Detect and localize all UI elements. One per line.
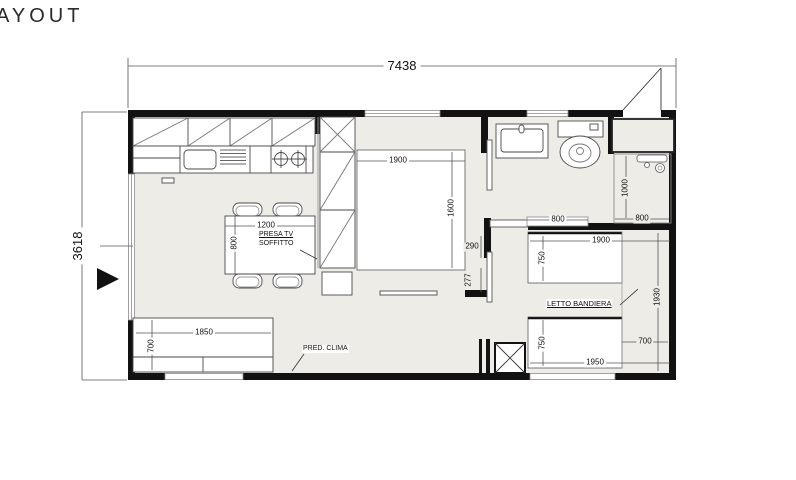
bedside-table <box>322 272 352 295</box>
dim-overall-width: 7438 <box>384 59 421 73</box>
window-bottom-right <box>530 374 615 380</box>
label-presa-tv-soffitto: PRESA TV SOFFITTO <box>259 231 293 249</box>
partition-l-piece <box>465 290 489 297</box>
shower-knob <box>656 164 665 173</box>
wall-top-1 <box>128 110 365 117</box>
label-pred-clima: PRED. CLIMA <box>302 345 349 353</box>
dim-table-width: 1200 <box>255 222 277 231</box>
wall-bottom-2 <box>243 373 530 380</box>
wall-bottom-1 <box>128 373 165 380</box>
dim-bed-depth: 1600 <box>448 197 457 219</box>
dim-bed2bot-depth: 750 <box>539 334 548 351</box>
dim-sofa-depth: 700 <box>148 337 157 354</box>
entrance-door-swing <box>623 68 661 110</box>
column-x <box>495 343 525 373</box>
wall-top-2 <box>440 110 527 117</box>
dim-shower-width: 800 <box>633 215 650 224</box>
dim-shower-depth: 1000 <box>622 177 631 199</box>
partition-bottom-stub-2 <box>486 339 490 373</box>
dim-shelf-width: 800 <box>549 216 566 225</box>
bed-bench <box>380 291 437 295</box>
door-swing-line <box>623 68 661 110</box>
kitchen-sink-basin <box>184 150 216 169</box>
dim-room2-depth: 1930 <box>654 286 663 308</box>
page-title: AYOUT <box>0 5 83 28</box>
dim-wall-277: 277 <box>465 271 474 288</box>
toilet-bowl <box>560 136 600 168</box>
sliding-door-leaf-3 <box>490 220 528 227</box>
kitchen-handle <box>162 178 174 183</box>
shower-head <box>645 163 650 168</box>
dim-side-space: 700 <box>636 338 653 347</box>
view-arrow-icon <box>97 268 119 290</box>
label-letto-bandiera: LETTO BANDIERA <box>546 299 612 308</box>
wardrobe-body <box>320 117 355 268</box>
bath-sink-faucet <box>519 125 524 133</box>
shower-mixer-bar <box>637 155 667 162</box>
window-bottom-left <box>165 374 243 380</box>
entry-cabinet <box>612 119 674 152</box>
partition-bottom-stub-1 <box>479 339 482 373</box>
wall-top-3 <box>568 110 623 117</box>
dim-table-depth: 800 <box>231 234 240 251</box>
dim-bed2top-width: 1900 <box>590 237 612 246</box>
floor-plan: AYOUT 7438 3618 1900 1600 1200 800 1850 … <box>0 0 796 480</box>
dim-bed2top-depth: 750 <box>539 249 548 266</box>
wardrobe <box>318 117 355 268</box>
dim-bed2bot-width: 1950 <box>584 359 606 368</box>
sliding-door-leaf-1 <box>487 140 492 190</box>
toilet-flush-button <box>590 124 598 130</box>
dim-bed-width: 1900 <box>387 157 409 166</box>
dim-wall-290: 290 <box>463 243 480 252</box>
dim-overall-height: 3618 <box>71 228 85 265</box>
kitchen <box>133 118 315 183</box>
sliding-door-leaf-2 <box>487 252 492 302</box>
wall-bottom-3 <box>615 373 676 380</box>
label-soffitto: SOFFITTO <box>259 240 293 249</box>
label-presa-tv: PRESA TV <box>259 231 293 240</box>
dim-sofa-width: 1850 <box>193 329 215 338</box>
